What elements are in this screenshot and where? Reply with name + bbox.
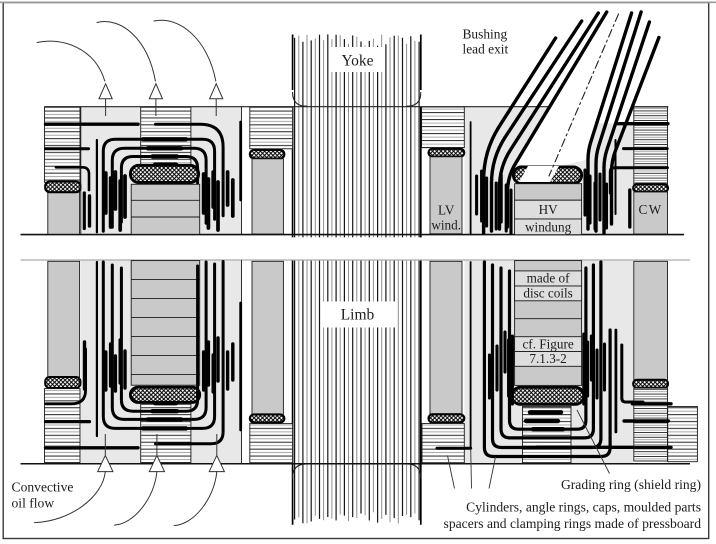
svg-text:lead exit: lead exit: [463, 42, 509, 57]
svg-text:Cylinders, angle rings, caps,: Cylinders, angle rings, caps, moulded pa…: [466, 500, 701, 515]
svg-text:LV: LV: [438, 203, 455, 218]
svg-text:Bushing: Bushing: [463, 27, 508, 42]
svg-text:oil flow: oil flow: [12, 496, 55, 511]
svg-text:disc coils: disc coils: [523, 286, 572, 301]
svg-text:cf. Figure: cf. Figure: [522, 336, 573, 351]
svg-text:Yoke: Yoke: [341, 53, 373, 70]
svg-text:Convective: Convective: [12, 480, 74, 495]
svg-text:Limb: Limb: [341, 307, 375, 324]
svg-text:CW: CW: [638, 202, 662, 217]
svg-text:spacers and clamping rings mad: spacers and clamping rings made of press…: [444, 516, 702, 531]
svg-text:7.1.3-2: 7.1.3-2: [529, 351, 566, 366]
svg-text:made of: made of: [527, 271, 570, 286]
svg-text:wind.: wind.: [431, 218, 461, 233]
svg-text:HV: HV: [539, 202, 559, 217]
svg-text:windung: windung: [525, 220, 572, 235]
svg-text:Grading ring (shield ring): Grading ring (shield ring): [561, 477, 701, 493]
